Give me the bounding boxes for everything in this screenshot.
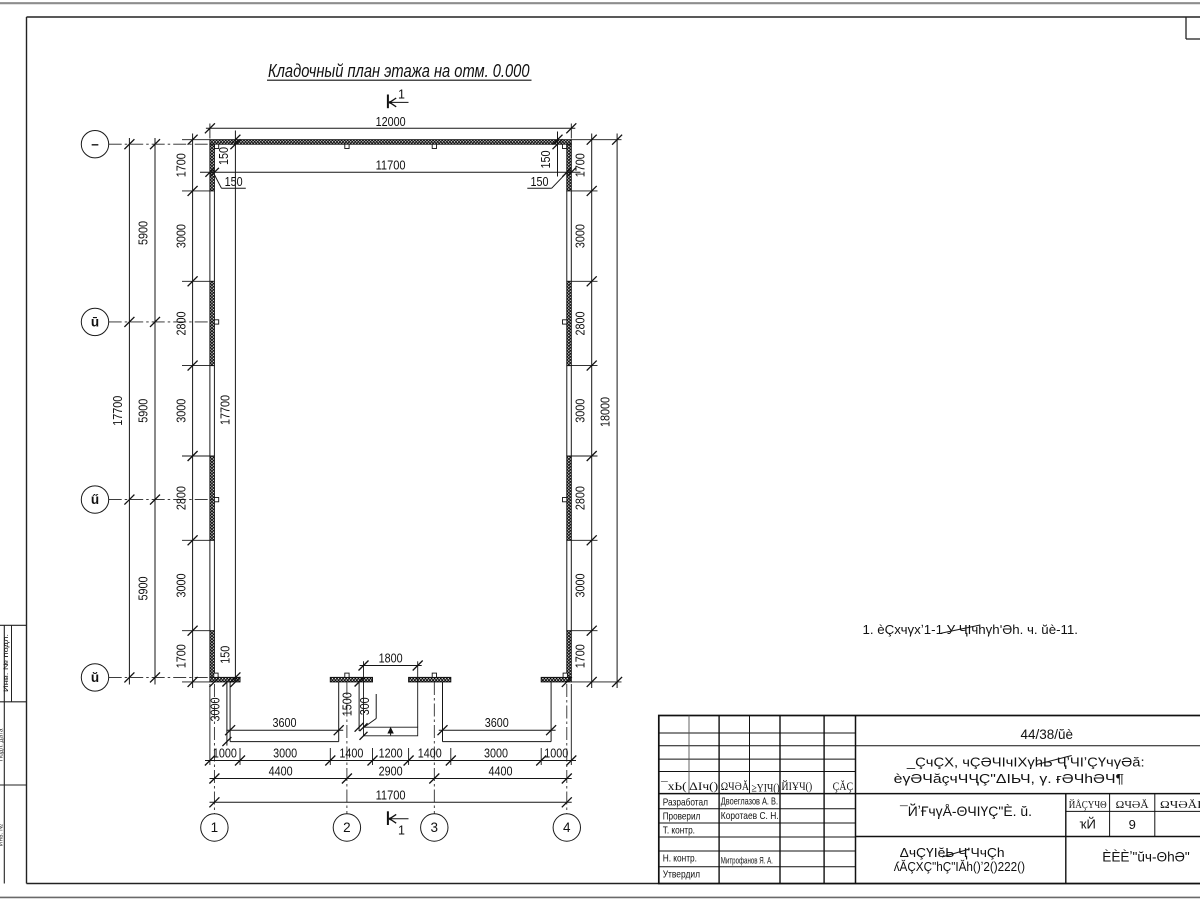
- svg-text:ΔчÇҮΙĕЬ ҶʼЧчÇh: ΔчÇҮΙĕЬ ҶʼЧчÇh: [900, 845, 1005, 860]
- svg-text:17700: 17700: [217, 395, 232, 425]
- svg-text:3600: 3600: [273, 715, 297, 730]
- svg-text:ū: ū: [91, 314, 99, 329]
- svg-text:Двоеглазов А. В.: Двоеглазов А. В.: [721, 796, 778, 808]
- svg-text:18000: 18000: [598, 397, 613, 427]
- svg-text:3: 3: [431, 820, 439, 835]
- svg-text:èγӘЧăçчЧҶÇ"ΔΙЬЧ, γ. ғӘЧhӘЧ¶: èγӘЧăçчЧҶÇ"ΔΙЬЧ, γ. ғӘЧhӘЧ¶: [894, 771, 1124, 786]
- svg-text:Утвердил: Утвердил: [663, 868, 700, 880]
- svg-text:4: 4: [563, 820, 571, 835]
- svg-text:3000: 3000: [572, 399, 587, 423]
- svg-text:44/38/ŭè: 44/38/ŭè: [1021, 726, 1074, 742]
- svg-text:Коротаев С. Н.: Коротаев С. Н.: [721, 810, 779, 822]
- svg-text:–: –: [91, 137, 99, 152]
- svg-text:¯хЬ(: ¯хЬ(: [660, 780, 687, 793]
- svg-text:4400: 4400: [269, 764, 293, 779]
- svg-text:3000: 3000: [173, 224, 188, 248]
- svg-text:300: 300: [357, 697, 372, 715]
- svg-text:12000: 12000: [376, 114, 406, 129]
- svg-text:1400: 1400: [418, 746, 442, 761]
- svg-text:5900: 5900: [136, 399, 151, 423]
- svg-text:1: 1: [398, 823, 405, 837]
- svg-text:ÇĂÇ: ÇĂÇ: [833, 779, 854, 793]
- svg-text:ΩЧӘĂ: ΩЧӘĂ: [721, 779, 750, 793]
- svg-text:Проверил: Проверил: [663, 810, 701, 822]
- svg-text:1500: 1500: [340, 692, 355, 716]
- svg-text:ΩЧӘĂΙЧ: ΩЧӘĂΙЧ: [1160, 799, 1200, 811]
- svg-text:3000: 3000: [484, 746, 508, 761]
- svg-text:17700: 17700: [110, 396, 125, 426]
- svg-text:9: 9: [1129, 817, 1136, 832]
- svg-text:150: 150: [538, 151, 553, 169]
- svg-text:1400: 1400: [339, 746, 363, 761]
- svg-text:1000: 1000: [544, 746, 568, 761]
- svg-text:Инв. №: Инв. №: [0, 824, 5, 846]
- svg-text:150: 150: [217, 646, 232, 664]
- svg-text:Разработал: Разработал: [663, 796, 708, 808]
- svg-text:1800: 1800: [379, 650, 403, 665]
- svg-text:11700: 11700: [376, 157, 406, 172]
- svg-text:3000: 3000: [173, 399, 188, 423]
- svg-text:1. èÇхчγхʼ1-1 У ҶΙчhγhʹӘh. ч.: 1. èÇхчγхʼ1-1 У ҶΙчhγhʹӘh. ч. ŭè-11.: [863, 623, 1079, 637]
- svg-text:2800: 2800: [572, 486, 587, 510]
- svg-text:5900: 5900: [136, 221, 151, 245]
- svg-text:1: 1: [398, 88, 405, 102]
- svg-text:1: 1: [211, 820, 219, 835]
- svg-text:Митрофанов Я. А.: Митрофанов Я. А.: [721, 856, 773, 866]
- svg-text:3000: 3000: [273, 746, 297, 761]
- svg-text:Н. контр.: Н. контр.: [663, 852, 697, 864]
- svg-text:Кладочный план этажа на отм. 0: Кладочный план этажа на отм. 0.000: [268, 60, 530, 81]
- svg-text:3600: 3600: [485, 715, 509, 730]
- svg-text:Подп. дата: Подп. дата: [0, 728, 5, 761]
- svg-text:ŭ: ŭ: [91, 670, 99, 685]
- svg-text:150: 150: [531, 174, 549, 189]
- svg-text:4400: 4400: [489, 764, 513, 779]
- svg-text:≥YΙЧ(): ≥YΙЧ(): [752, 782, 780, 794]
- svg-text:1000: 1000: [213, 746, 237, 761]
- svg-text:3000: 3000: [572, 224, 587, 248]
- svg-text:2: 2: [343, 820, 351, 835]
- svg-text:1700: 1700: [173, 644, 188, 668]
- svg-text:150: 150: [216, 147, 231, 165]
- svg-text:2800: 2800: [173, 312, 188, 336]
- svg-text:3000: 3000: [572, 574, 587, 598]
- svg-text:5900: 5900: [136, 577, 151, 601]
- svg-text:ÈÈÈʼ"ŭч-ΘhӘ": ÈÈÈʼ"ŭч-ΘhӘ": [1102, 850, 1190, 865]
- svg-text:Инв. № подл.: Инв. № подл.: [3, 634, 10, 692]
- svg-text:_ÇчÇХ, чÇӘЧΙчΙХγhЬ ҶʼЧΙʼÇҮчγӘă: _ÇчÇХ, чÇӘЧΙчΙХγhЬ ҶʼЧΙʼÇҮчγӘă:: [906, 755, 1145, 770]
- svg-text:ű: ű: [91, 492, 99, 507]
- svg-text:ΩЧӘĂ: ΩЧӘĂ: [1116, 799, 1149, 811]
- svg-text:ЙÅÇҮЧΘ: ЙÅÇҮЧΘ: [1069, 799, 1107, 811]
- svg-text:1700: 1700: [572, 153, 587, 177]
- svg-text:1700: 1700: [173, 153, 188, 177]
- svg-text:2800: 2800: [173, 486, 188, 510]
- svg-text:2900: 2900: [379, 764, 403, 779]
- svg-text:Т. контр.: Т. контр.: [663, 824, 695, 836]
- svg-text:ʎĂÇХÇ"hÇ"ΙĂh()ʼ2()222(): ʎĂÇХÇ"hÇ"ΙĂh()ʼ2()222(): [894, 859, 1025, 874]
- svg-text:2800: 2800: [572, 312, 587, 336]
- svg-text:11700: 11700: [376, 788, 406, 803]
- svg-text:3000: 3000: [173, 574, 188, 598]
- svg-text:1700: 1700: [572, 644, 587, 668]
- svg-text:¯ЙʼҒчγÅ-ΘЧΙҮÇ"È. ŭ.: ¯ЙʼҒчγÅ-ΘЧΙҮÇ"È. ŭ.: [899, 804, 1032, 819]
- svg-text:150: 150: [225, 174, 243, 189]
- svg-text:ΔΙч(): ΔΙч(): [689, 781, 718, 793]
- svg-text:ЙΙҰЧ(): ЙΙҰЧ(): [781, 779, 812, 793]
- svg-text:ҡЙ: ҡЙ: [1080, 817, 1096, 832]
- svg-text:1200: 1200: [379, 746, 403, 761]
